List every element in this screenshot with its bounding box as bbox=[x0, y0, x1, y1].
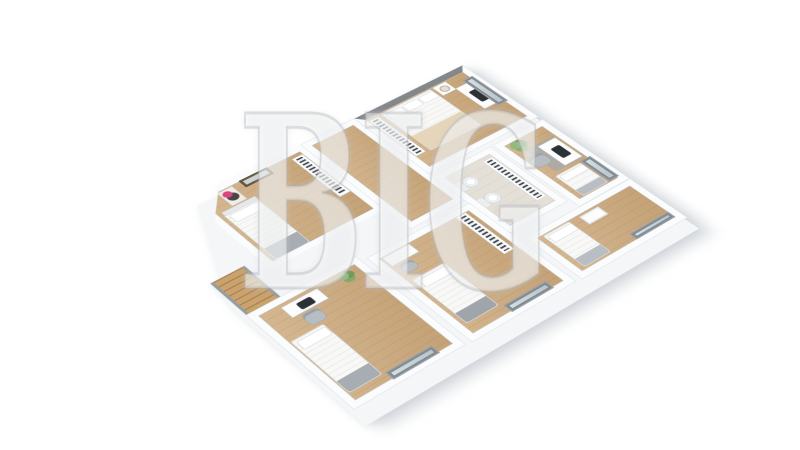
double-bed bbox=[380, 89, 481, 151]
dresser bbox=[579, 206, 609, 224]
bed-pillow bbox=[418, 265, 455, 288]
single-bed bbox=[290, 324, 382, 393]
computer-monitor bbox=[551, 145, 571, 157]
floorplan-3d bbox=[133, 65, 708, 434]
bed-throw bbox=[455, 296, 498, 323]
bed-throw bbox=[575, 244, 610, 266]
potted-plant bbox=[335, 268, 360, 284]
bed-throw bbox=[412, 111, 480, 150]
computer-monitor bbox=[297, 297, 316, 309]
bidet bbox=[475, 190, 506, 209]
floorplan-render: BIG bbox=[0, 0, 800, 450]
table-lamp bbox=[437, 84, 452, 93]
bed-throw bbox=[337, 363, 382, 392]
wall-mirror bbox=[240, 168, 274, 187]
bed-pillow bbox=[547, 223, 580, 243]
bed-throw bbox=[576, 177, 608, 196]
bed-pillow bbox=[296, 326, 334, 349]
toilet bbox=[453, 174, 483, 192]
